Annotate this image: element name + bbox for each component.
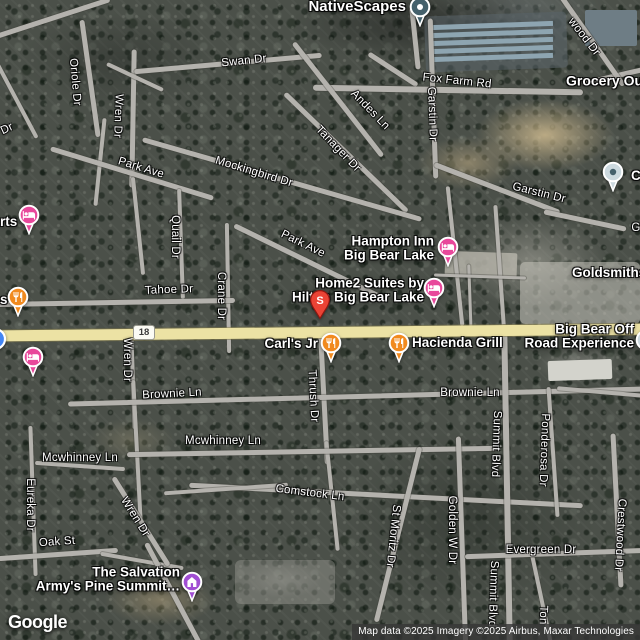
restaurant-marker-left[interactable] <box>6 286 30 317</box>
bed-icon <box>422 277 446 308</box>
big-bear-off-road-marker[interactable] <box>634 329 640 360</box>
poi-label-hampton-inn[interactable]: Hampton InnBig Bear Lake <box>344 235 434 264</box>
school-buildings <box>235 560 335 604</box>
road-segment <box>610 433 623 587</box>
poi-label-line: NativeScapes <box>308 0 406 15</box>
road-segment <box>546 387 559 517</box>
white-building <box>548 359 613 381</box>
road-segment <box>493 205 506 339</box>
google-logo[interactable]: Google <box>8 612 67 633</box>
poi-label-salvation-army[interactable]: The SalvationArmy's Pine Summit… <box>36 566 180 595</box>
lodging-marker-left-lower[interactable] <box>21 346 45 377</box>
road-segment <box>543 209 626 231</box>
street-label-mcwhinney-ln: Mcwhinney Ln <box>185 435 261 447</box>
road-segment <box>127 445 497 456</box>
street-label-summit-blvd: Summit Blvd <box>486 560 500 627</box>
road-segment <box>501 325 513 640</box>
poi-dot-icon <box>634 329 640 360</box>
home2-suites-marker[interactable] <box>422 277 446 308</box>
poi-label-line: Goldsmiths <box>572 266 640 280</box>
road-segment <box>0 0 110 43</box>
poi-label-rts-partial[interactable]: rts <box>0 215 17 229</box>
satellite-map[interactable]: Swan DrOriole DrDrWren DrPark AveMocking… <box>0 0 640 640</box>
nativescapes-marker[interactable] <box>408 0 432 27</box>
poi-dot-icon <box>408 0 432 27</box>
storage-roof <box>431 21 553 30</box>
industrial-pad <box>424 12 568 73</box>
map-attribution: Map data ©2025 Imagery ©2025 Airbus, Max… <box>352 624 640 640</box>
poi-label-hacienda-grill[interactable]: Hacienda Grill <box>412 336 503 350</box>
road-segment <box>35 461 125 471</box>
street-label-park-ave: Park Ave <box>279 228 327 260</box>
storage-roof <box>431 29 553 38</box>
road-segment <box>428 18 439 178</box>
poi-dot-icon <box>601 161 625 192</box>
road-segment <box>374 446 422 622</box>
svg-text:S: S <box>316 295 323 307</box>
road-segment <box>134 52 322 73</box>
bed-icon <box>17 204 41 235</box>
poi-label-line: Grocery Outlet <box>566 74 640 89</box>
storage-roof <box>431 53 553 62</box>
lodging-marker-left-upper[interactable] <box>17 204 41 235</box>
blue-marker-left-edge[interactable] <box>0 327 7 351</box>
road-segment <box>324 441 339 551</box>
bed-icon <box>21 346 45 377</box>
salvation-army-marker[interactable] <box>180 571 204 602</box>
street-label-g: G <box>631 222 640 234</box>
street-label-dr: Dr <box>0 121 15 137</box>
storage-roof <box>431 37 553 46</box>
search-result-pin[interactable]: S <box>308 289 332 320</box>
poi-label-line: Big Bear Lake <box>344 249 434 263</box>
route-18-shield: 18 <box>133 325 155 340</box>
street-label-golden-w-dr: Golden W Dr <box>446 496 458 565</box>
poi-label-line: Army's Pine Summit… <box>36 580 180 594</box>
poi-label-nativescapes[interactable]: NativeScapes <box>308 0 406 15</box>
fork-knife-icon <box>387 332 411 363</box>
fork-knife-icon <box>319 332 343 363</box>
storage-roof <box>431 45 553 54</box>
road-segment <box>465 547 640 558</box>
street-label-summit-blvd: Summit Blvd <box>489 410 503 477</box>
fork-knife-icon <box>6 286 30 317</box>
street-label-tahoe-dr: Tahoe Dr <box>145 283 194 297</box>
poi-label-grocery-outlet[interactable]: Grocery Outlet <box>566 74 640 89</box>
house-icon <box>180 571 204 602</box>
road-segment <box>434 273 526 279</box>
road-segment <box>177 189 185 299</box>
road-segment <box>68 386 640 406</box>
poi-label-cl-partial[interactable]: Cl <box>631 169 640 183</box>
road-segment <box>0 297 235 306</box>
poi-label-line: Road Experience <box>524 337 634 351</box>
blue-dot-icon <box>0 327 7 351</box>
poi-label-line: Cl <box>631 169 640 183</box>
poi-label-line: rts <box>0 215 17 229</box>
poi-label-big-bear-off-road[interactable]: Big Bear OffRoad Experience <box>524 323 634 352</box>
poi-label-line: Carl's Jr <box>265 337 319 351</box>
street-label-oriole-dr: Oriole Dr <box>67 58 83 107</box>
poi-label-goldsmiths[interactable]: Goldsmiths <box>572 266 640 280</box>
poi-label-carls-jr[interactable]: Carl's Jr <box>265 337 319 351</box>
road-segment <box>131 177 145 275</box>
hampton-inn-marker[interactable] <box>436 236 460 267</box>
hacienda-grill-marker[interactable] <box>387 332 411 363</box>
carls-jr-marker[interactable] <box>319 332 343 363</box>
poi-label-line: Hacienda Grill <box>412 336 503 350</box>
street-label-wren-dr: Wren Dr <box>111 94 125 138</box>
road-segment <box>313 85 583 96</box>
street-label-oak-st: Oak St <box>38 535 75 550</box>
search-pin-icon: S <box>308 289 332 320</box>
road-segment <box>79 19 100 137</box>
poi-marker-right-top[interactable] <box>601 161 625 192</box>
road-segment <box>456 436 468 640</box>
bed-icon <box>436 236 460 267</box>
road-segment <box>0 53 38 139</box>
road-segment <box>367 51 418 87</box>
